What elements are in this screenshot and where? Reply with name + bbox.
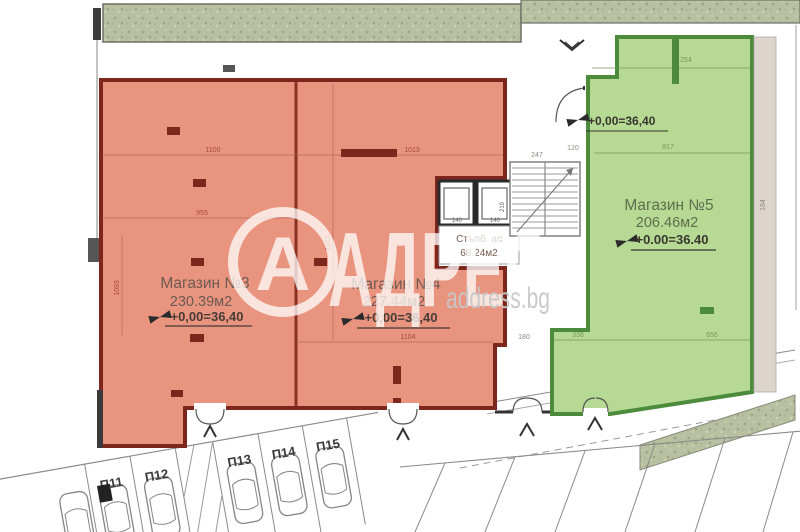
dim-817: 817: [662, 144, 674, 151]
car-icon: [315, 445, 353, 509]
car-icon: [59, 490, 97, 532]
watermark-initial: А: [256, 222, 311, 307]
entrance-elevation: +0,00=36,40: [588, 114, 656, 128]
dim-1100: 1100: [205, 147, 220, 154]
hatched-parking-slot: [175, 442, 231, 532]
dim-656: 656: [706, 332, 718, 339]
grass-strip-top-left: [103, 4, 521, 42]
entrance-arrow-icon: [520, 424, 534, 436]
car-icon: [226, 461, 264, 525]
street-entry-arrow-icon: [560, 40, 584, 50]
grass-strip-top-right: [521, 0, 800, 23]
dim-180: 180: [518, 334, 530, 341]
shop5-elevation: +0.00=36.40: [635, 232, 708, 247]
parking-row-far: [400, 431, 800, 532]
dim-247: 247: [531, 152, 543, 159]
entrance-arrow-icon: [204, 426, 216, 437]
dim-1013: 1013: [404, 147, 420, 154]
shop3-entrance-door: [194, 403, 226, 437]
shop3-area-value: 230.39м2: [170, 294, 232, 310]
shop5-area-value: 206.46м2: [636, 215, 698, 231]
dim-336: 336: [572, 332, 584, 339]
floor-plan: П11 П12 П13 П14 П15: [0, 0, 800, 532]
dim-1104: 1104: [400, 334, 415, 341]
dim-120: 120: [567, 145, 579, 152]
entrance-arrow-icon: [397, 429, 409, 440]
dim-184: 184: [760, 199, 767, 211]
floor-plan-svg: П11 П12 П13 П14 П15: [0, 0, 800, 532]
car-icon: [270, 453, 308, 517]
parking-row: П11 П12 П13 П14 П15: [0, 412, 397, 532]
shop3-elevation: +0,00=36,40: [170, 309, 243, 324]
watermark-site: address.bg: [446, 282, 550, 315]
watermark: А АДРЕС address.bg: [233, 211, 550, 329]
entrance-arrow-icon: [588, 418, 602, 430]
dim-955: 955: [196, 210, 208, 217]
dim-1093: 1093: [114, 280, 121, 296]
sidewalk-strip: [754, 37, 776, 392]
lobby-top-door: [556, 86, 584, 122]
shop5-name: Магазин №5: [624, 197, 713, 214]
dim-254: 254: [680, 57, 692, 64]
shop4-entrance-door: [387, 403, 419, 440]
